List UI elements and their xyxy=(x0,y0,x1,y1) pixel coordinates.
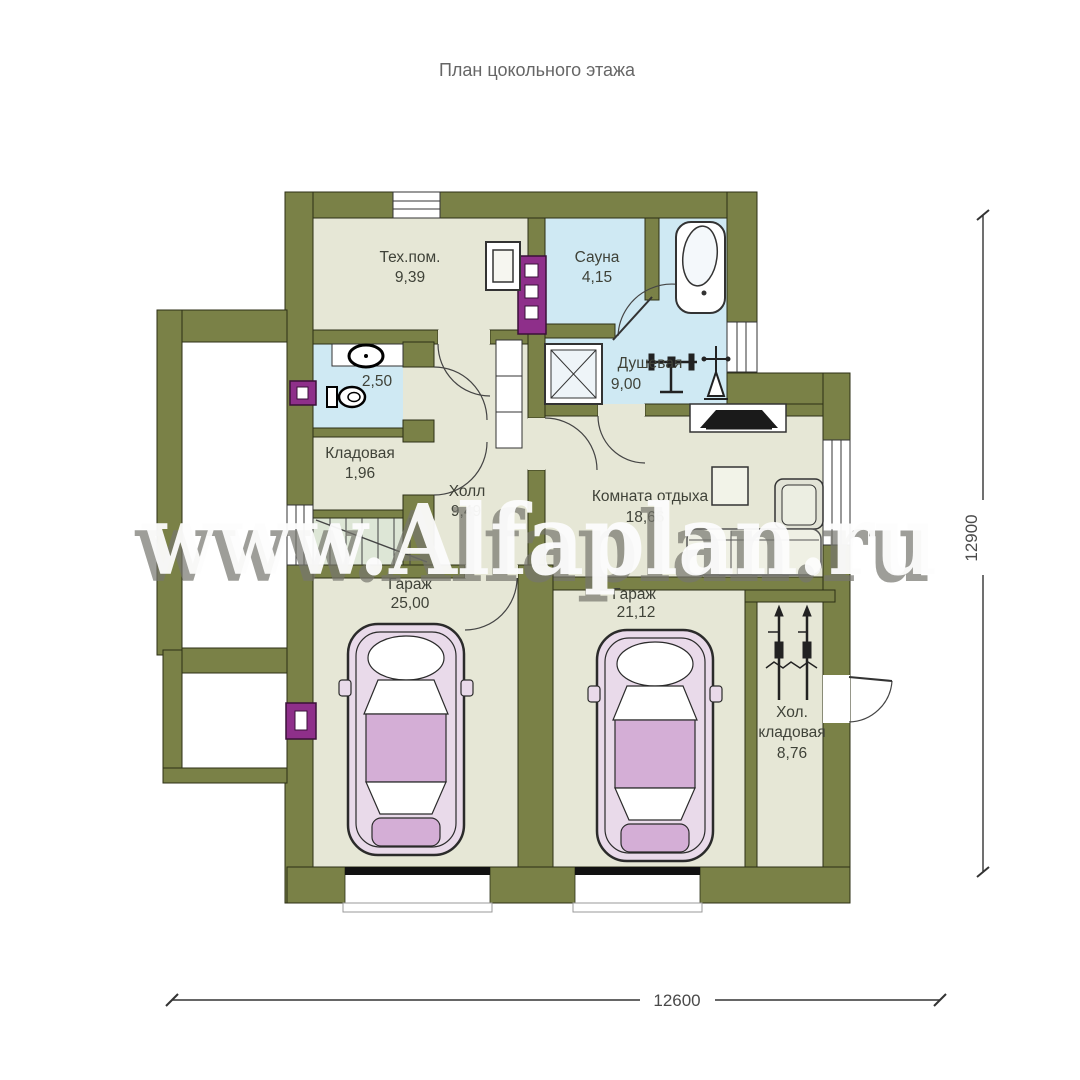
room-area: 4,15 xyxy=(582,269,612,286)
room-area: 8,76 xyxy=(777,745,807,762)
room-name: Кладовая xyxy=(325,445,394,462)
floor-plan-drawing: План цокольного этажа xyxy=(0,0,1080,1080)
room-name: Тех.пом. xyxy=(380,249,441,266)
room-name-line1: Хол. xyxy=(776,704,808,721)
room-area: 9,39 xyxy=(395,269,425,286)
chimney-icon xyxy=(518,256,546,334)
garage-door-1 xyxy=(345,867,490,875)
car-icon xyxy=(588,630,722,861)
room-name: Сауна xyxy=(575,249,620,266)
dimension-width-label: 12600 xyxy=(653,991,700,1010)
bath-icon xyxy=(676,222,725,313)
chimney-icon xyxy=(290,381,316,405)
garage-door-2 xyxy=(575,867,700,875)
dimension-horizontal xyxy=(166,994,946,1006)
dimension-height-label: 12900 xyxy=(962,514,981,561)
room-area: 2,50 xyxy=(362,373,393,390)
boiler-icon xyxy=(486,242,520,290)
room-name: Душевая xyxy=(618,355,683,372)
door-leaf-exterior xyxy=(849,677,892,681)
sink-icon xyxy=(332,344,403,367)
room-area: 9,00 xyxy=(611,376,642,393)
watermark: www.Alfaplan.ru www.Alfaplan.ru xyxy=(135,483,938,604)
chimney-icon xyxy=(286,703,316,739)
room-area: 21,12 xyxy=(617,604,656,621)
window-top xyxy=(393,192,440,218)
floor-plan-page: План цокольного этажа xyxy=(0,0,1080,1080)
garage-apron-2 xyxy=(573,903,702,912)
shower-cabin-icon xyxy=(545,344,602,404)
wardrobe-icon xyxy=(496,340,522,448)
room-area: 1,96 xyxy=(345,465,375,482)
room-name-line2: кладовая xyxy=(758,724,825,741)
room-wc: 2,50 xyxy=(362,373,393,390)
watermark-text: www.Alfaplan.ru xyxy=(142,483,938,597)
car-icon xyxy=(339,624,473,855)
garage-apron-1 xyxy=(343,903,492,912)
door-arc-exterior xyxy=(849,681,892,722)
toilet-icon xyxy=(327,387,365,407)
tv-icon xyxy=(690,404,786,432)
window-shower-east xyxy=(727,322,757,372)
page-title: План цокольного этажа xyxy=(439,60,636,80)
